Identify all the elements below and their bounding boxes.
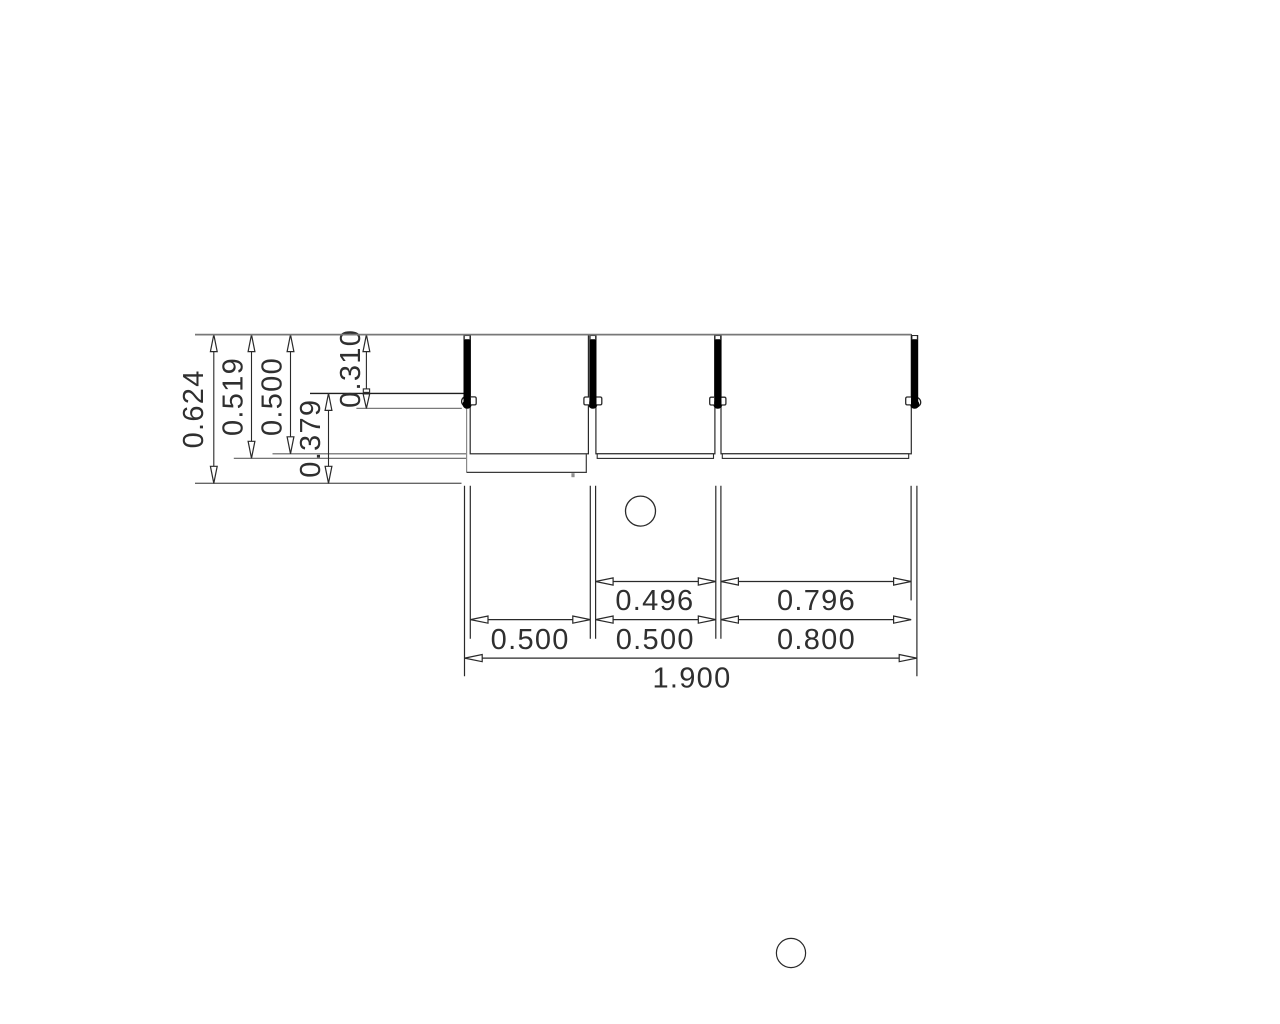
svg-text:0.796: 0.796 [777,585,856,617]
svg-text:0.624: 0.624 [178,369,210,448]
svg-text:0.310: 0.310 [335,329,367,408]
svg-text:0.496: 0.496 [615,585,694,617]
svg-text:0.500: 0.500 [257,357,289,436]
svg-text:0.519: 0.519 [218,357,250,436]
svg-text:0.500: 0.500 [491,624,570,656]
svg-text:0.500: 0.500 [616,624,695,656]
svg-text:0.800: 0.800 [777,624,856,656]
svg-text:1.900: 1.900 [652,662,731,694]
svg-text:0.379: 0.379 [295,399,327,478]
